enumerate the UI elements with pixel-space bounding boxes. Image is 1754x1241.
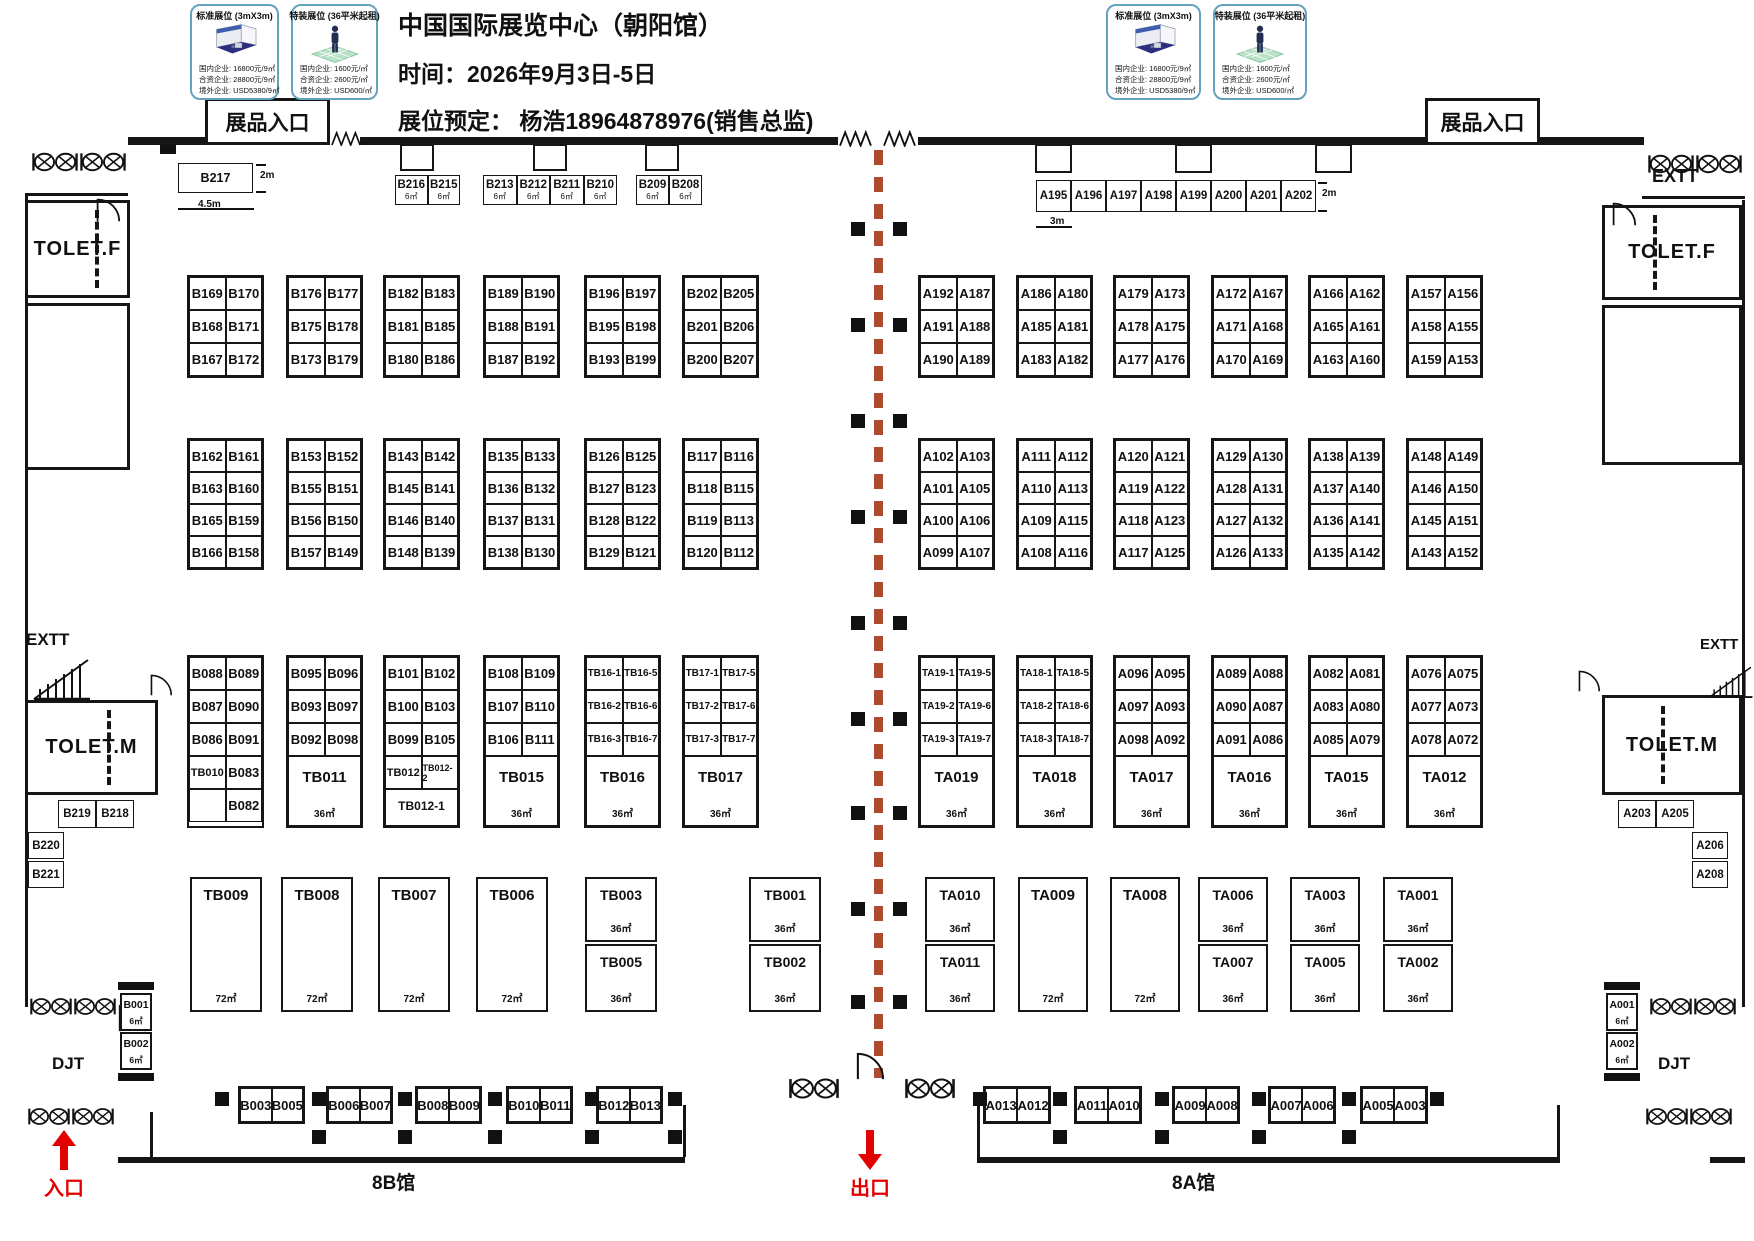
booth-B113[interactable]: B113: [721, 504, 758, 536]
booth-A151[interactable]: A151: [1445, 504, 1482, 536]
booth-TA19-3[interactable]: TA19-3: [920, 723, 957, 756]
booth-A122[interactable]: A122: [1152, 472, 1189, 504]
booth-B009[interactable]: B009: [449, 1088, 481, 1122]
booth-A158[interactable]: A158: [1408, 310, 1445, 343]
booth-B155[interactable]: B155: [288, 472, 325, 504]
booth-A177[interactable]: A177: [1115, 343, 1152, 376]
booth-A179[interactable]: A179: [1115, 277, 1152, 310]
booth-A196[interactable]: A196: [1071, 180, 1106, 212]
booth-A182[interactable]: A182: [1055, 343, 1092, 376]
booth-B196[interactable]: B196: [586, 277, 623, 310]
booth-A163[interactable]: A163: [1310, 343, 1347, 376]
booth-A079[interactable]: A079: [1347, 723, 1384, 756]
booth-B083[interactable]: B083: [226, 756, 263, 789]
booth-A152[interactable]: A152: [1445, 536, 1482, 568]
booth-B171[interactable]: B171: [226, 310, 263, 343]
booth-B096[interactable]: B096: [325, 657, 362, 690]
booth-A100[interactable]: A100: [920, 504, 957, 536]
booth-A201[interactable]: A201: [1246, 180, 1281, 212]
booth-B128[interactable]: B128: [586, 504, 623, 536]
booth-A161[interactable]: A161: [1347, 310, 1384, 343]
booth-TA015[interactable]: TA01536㎡: [1310, 756, 1383, 826]
booth-TA006[interactable]: TA00636㎡: [1198, 877, 1268, 942]
booth-TB16-5[interactable]: TB16-5: [623, 657, 660, 690]
booth-A157[interactable]: A157: [1408, 277, 1445, 310]
booth-B142[interactable]: B142: [422, 440, 459, 472]
booth-TB16-3[interactable]: TB16-3: [586, 723, 623, 756]
booth-A089[interactable]: A089: [1213, 657, 1250, 690]
booth-B220[interactable]: B220: [28, 832, 64, 859]
booth-B126[interactable]: B126: [586, 440, 623, 472]
booth-A118[interactable]: A118: [1115, 504, 1152, 536]
booth-A206[interactable]: A206: [1692, 832, 1728, 859]
booth-B107[interactable]: B107: [485, 690, 522, 723]
booth-TB010[interactable]: TB010: [189, 756, 226, 789]
booth-B089[interactable]: B089: [226, 657, 263, 690]
booth-A121[interactable]: A121: [1152, 440, 1189, 472]
booth-B119[interactable]: B119: [684, 504, 721, 536]
booth-B170[interactable]: B170: [226, 277, 263, 310]
booth-TB17-3[interactable]: TB17-3: [684, 723, 721, 756]
booth-TB009[interactable]: TB00972㎡: [190, 877, 262, 1012]
booth-B180[interactable]: B180: [385, 343, 422, 376]
booth-A180[interactable]: A180: [1055, 277, 1092, 310]
booth-A172[interactable]: A172: [1213, 277, 1250, 310]
booth-A090[interactable]: A090: [1213, 690, 1250, 723]
booth-TB011[interactable]: TB01136㎡: [288, 756, 361, 826]
booth-A139[interactable]: A139: [1347, 440, 1384, 472]
booth-B133[interactable]: B133: [522, 440, 559, 472]
booth-A155[interactable]: A155: [1445, 310, 1482, 343]
booth-B187[interactable]: B187: [485, 343, 522, 376]
booth-B217[interactable]: B217: [178, 163, 253, 193]
booth-B158[interactable]: B158: [226, 536, 263, 568]
booth-A168[interactable]: A168: [1250, 310, 1287, 343]
booth-A170[interactable]: A170: [1213, 343, 1250, 376]
booth-A149[interactable]: A149: [1445, 440, 1482, 472]
booth-A186[interactable]: A186: [1018, 277, 1055, 310]
booth-B205[interactable]: B205: [721, 277, 758, 310]
booth-A195[interactable]: A195: [1036, 180, 1071, 212]
booth-A143[interactable]: A143: [1408, 536, 1445, 568]
booth-B152[interactable]: B152: [325, 440, 362, 472]
booth-A010[interactable]: A010: [1108, 1088, 1140, 1122]
booth-TB16-6[interactable]: TB16-6: [623, 690, 660, 723]
booth-TB012-1[interactable]: TB012-1: [385, 789, 458, 826]
booth-B103[interactable]: B103: [422, 690, 459, 723]
booth-B160[interactable]: B160: [226, 472, 263, 504]
booth-B138[interactable]: B138: [485, 536, 522, 568]
booth-B111[interactable]: B111: [522, 723, 559, 756]
booth-A013[interactable]: A013: [985, 1088, 1017, 1122]
booth-B212[interactable]: B2126㎡: [517, 175, 551, 205]
booth-B213[interactable]: B2136㎡: [483, 175, 517, 205]
booth-B086[interactable]: B086: [189, 723, 226, 756]
booth-A078[interactable]: A078: [1408, 723, 1445, 756]
booth-A150[interactable]: A150: [1445, 472, 1482, 504]
booth-TA001[interactable]: TA00136㎡: [1383, 877, 1453, 942]
booth-A009[interactable]: A009: [1174, 1088, 1206, 1122]
booth-A092[interactable]: A092: [1152, 723, 1189, 756]
booth-A109[interactable]: A109: [1018, 504, 1055, 536]
booth-A111[interactable]: A111: [1018, 440, 1055, 472]
booth-B129[interactable]: B129: [586, 536, 623, 568]
booth-B175[interactable]: B175: [288, 310, 325, 343]
booth-A097[interactable]: A097: [1115, 690, 1152, 723]
booth-B132[interactable]: B132: [522, 472, 559, 504]
booth-A101[interactable]: A101: [920, 472, 957, 504]
booth-B201[interactable]: B201: [684, 310, 721, 343]
booth-A080[interactable]: A080: [1347, 690, 1384, 723]
booth-B156[interactable]: B156: [288, 504, 325, 536]
booth-A167[interactable]: A167: [1250, 277, 1287, 310]
booth-A007[interactable]: A007: [1270, 1088, 1302, 1122]
booth-B002[interactable]: B0026㎡: [120, 1032, 152, 1070]
booth-TA016[interactable]: TA01636㎡: [1213, 756, 1286, 826]
booth-TA19-6[interactable]: TA19-6: [957, 690, 994, 723]
booth-TB16-7[interactable]: TB16-7: [623, 723, 660, 756]
booth-B100[interactable]: B100: [385, 690, 422, 723]
booth-B082[interactable]: B082: [226, 789, 263, 822]
booth-TA005[interactable]: TA00536㎡: [1290, 944, 1360, 1012]
booth-A087[interactable]: A087: [1250, 690, 1287, 723]
booth-A081[interactable]: A081: [1347, 657, 1384, 690]
booth-TA002[interactable]: TA00236㎡: [1383, 944, 1453, 1012]
booth-B097[interactable]: B097: [325, 690, 362, 723]
booth-TB16-1[interactable]: TB16-1: [586, 657, 623, 690]
booth-B127[interactable]: B127: [586, 472, 623, 504]
booth-TB008[interactable]: TB00872㎡: [281, 877, 353, 1012]
booth-B118[interactable]: B118: [684, 472, 721, 504]
booth-B176[interactable]: B176: [288, 277, 325, 310]
booth-B116[interactable]: B116: [721, 440, 758, 472]
booth-B003[interactable]: B003: [240, 1088, 272, 1122]
booth-A160[interactable]: A160: [1347, 343, 1384, 376]
booth-B090[interactable]: B090: [226, 690, 263, 723]
booth-A185[interactable]: A185: [1018, 310, 1055, 343]
booth-B143[interactable]: B143: [385, 440, 422, 472]
booth-A012[interactable]: A012: [1017, 1088, 1049, 1122]
booth-B209[interactable]: B2096㎡: [636, 175, 669, 205]
booth-TA007[interactable]: TA00736㎡: [1198, 944, 1268, 1012]
booth-B182[interactable]: B182: [385, 277, 422, 310]
booth-A088[interactable]: A088: [1250, 657, 1287, 690]
exhibit-entrance-left[interactable]: 展品入口: [205, 98, 330, 145]
booth-A187[interactable]: A187: [957, 277, 994, 310]
booth-TA19-5[interactable]: TA19-5: [957, 657, 994, 690]
booth-B112[interactable]: B112: [721, 536, 758, 568]
booth-TB003[interactable]: TB00336㎡: [585, 877, 657, 942]
booth-A190[interactable]: A190: [920, 343, 957, 376]
booth-B191[interactable]: B191: [522, 310, 559, 343]
booth-B131[interactable]: B131: [522, 504, 559, 536]
booth-A169[interactable]: A169: [1250, 343, 1287, 376]
booth-B006[interactable]: B006: [328, 1088, 360, 1122]
booth-A175[interactable]: A175: [1152, 310, 1189, 343]
booth-A116[interactable]: A116: [1055, 536, 1092, 568]
booth-A075[interactable]: A075: [1445, 657, 1482, 690]
booth-TB012[interactable]: TB012: [385, 756, 422, 789]
booth-A115[interactable]: A115: [1055, 504, 1092, 536]
booth-A188[interactable]: A188: [957, 310, 994, 343]
booth-TA18-7[interactable]: TA18-7: [1055, 723, 1092, 756]
booth-A098[interactable]: A098: [1115, 723, 1152, 756]
booth-A086[interactable]: A086: [1250, 723, 1287, 756]
booth-B091[interactable]: B091: [226, 723, 263, 756]
booth-A125[interactable]: A125: [1152, 536, 1189, 568]
booth-A099[interactable]: A099: [920, 536, 957, 568]
booth-A138[interactable]: A138: [1310, 440, 1347, 472]
booth-B140[interactable]: B140: [422, 504, 459, 536]
booth-B163[interactable]: B163: [189, 472, 226, 504]
booth-TA009[interactable]: TA00972㎡: [1018, 877, 1088, 1012]
booth-B197[interactable]: B197: [623, 277, 660, 310]
booth-B157[interactable]: B157: [288, 536, 325, 568]
booth-TB17-6[interactable]: TB17-6: [721, 690, 758, 723]
booth-A110[interactable]: A110: [1018, 472, 1055, 504]
booth-B093[interactable]: B093: [288, 690, 325, 723]
booth-B012[interactable]: B012: [598, 1088, 630, 1122]
booth-A135[interactable]: A135: [1310, 536, 1347, 568]
booth-B190[interactable]: B190: [522, 277, 559, 310]
booth-A011[interactable]: A011: [1076, 1088, 1108, 1122]
booth-A140[interactable]: A140: [1347, 472, 1384, 504]
booth-B099[interactable]: B099: [385, 723, 422, 756]
booth-A127[interactable]: A127: [1213, 504, 1250, 536]
booth-TA011[interactable]: TA01136㎡: [925, 944, 995, 1012]
booth-A105[interactable]: A105: [957, 472, 994, 504]
booth-B146[interactable]: B146: [385, 504, 422, 536]
booth-A148[interactable]: A148: [1408, 440, 1445, 472]
booth-B105[interactable]: B105: [422, 723, 459, 756]
booth-B178[interactable]: B178: [325, 310, 362, 343]
booth-B115[interactable]: B115: [721, 472, 758, 504]
booth-A108[interactable]: A108: [1018, 536, 1055, 568]
booth-B159[interactable]: B159: [226, 504, 263, 536]
booth-A200[interactable]: A200: [1211, 180, 1246, 212]
booth-B123[interactable]: B123: [623, 472, 660, 504]
booth-TB17-7[interactable]: TB17-7: [721, 723, 758, 756]
booth-B101[interactable]: B101: [385, 657, 422, 690]
booth-A093[interactable]: A093: [1152, 690, 1189, 723]
booth-A137[interactable]: A137: [1310, 472, 1347, 504]
booth-A002[interactable]: A0026㎡: [1606, 1032, 1638, 1070]
booth-B141[interactable]: B141: [422, 472, 459, 504]
booth-A181[interactable]: A181: [1055, 310, 1092, 343]
booth-A073[interactable]: A073: [1445, 690, 1482, 723]
booth-TA012[interactable]: TA01236㎡: [1408, 756, 1481, 826]
booth-TA18-6[interactable]: TA18-6: [1055, 690, 1092, 723]
booth-B192[interactable]: B192: [522, 343, 559, 376]
booth-B005[interactable]: B005: [272, 1088, 304, 1122]
booth-A192[interactable]: A192: [920, 277, 957, 310]
booth-B169[interactable]: B169: [189, 277, 226, 310]
booth-A008[interactable]: A008: [1206, 1088, 1238, 1122]
booth-TB017[interactable]: TB01736㎡: [684, 756, 757, 826]
booth-A205[interactable]: A205: [1656, 800, 1694, 828]
booth-B211[interactable]: B2116㎡: [550, 175, 584, 205]
booth-B007[interactable]: B007: [360, 1088, 392, 1122]
booth-B106[interactable]: B106: [485, 723, 522, 756]
booth-B189[interactable]: B189: [485, 277, 522, 310]
booth-A096[interactable]: A096: [1115, 657, 1152, 690]
booth-A183[interactable]: A183: [1018, 343, 1055, 376]
booth-TB16-2[interactable]: TB16-2: [586, 690, 623, 723]
booth-B200[interactable]: B200: [684, 343, 721, 376]
booth-B219[interactable]: B219: [58, 800, 96, 828]
booth-B206[interactable]: B206: [721, 310, 758, 343]
booth-TB006[interactable]: TB00672㎡: [476, 877, 548, 1012]
booth-TA19-1[interactable]: TA19-1: [920, 657, 957, 690]
booth-B151[interactable]: B151: [325, 472, 362, 504]
booth-A128[interactable]: A128: [1213, 472, 1250, 504]
booth-B108[interactable]: B108: [485, 657, 522, 690]
booth-A202[interactable]: A202: [1281, 180, 1316, 212]
booth-B120[interactable]: B120: [684, 536, 721, 568]
booth-B221[interactable]: B221: [28, 861, 64, 888]
booth-B122[interactable]: B122: [623, 504, 660, 536]
booth-A130[interactable]: A130: [1250, 440, 1287, 472]
booth-A191[interactable]: A191: [920, 310, 957, 343]
booth-A208[interactable]: A208: [1692, 861, 1728, 888]
booth-B145[interactable]: B145: [385, 472, 422, 504]
booth-B001[interactable]: B0016㎡: [120, 993, 152, 1031]
booth-B207[interactable]: B207: [721, 343, 758, 376]
booth-A076[interactable]: A076: [1408, 657, 1445, 690]
booth-B098[interactable]: B098: [325, 723, 362, 756]
booth-B148[interactable]: B148: [385, 536, 422, 568]
booth-TA003[interactable]: TA00336㎡: [1290, 877, 1360, 942]
booth-TB012-2[interactable]: TB012-2: [422, 756, 459, 789]
booth-B011[interactable]: B011: [540, 1088, 572, 1122]
booth-TA19-2[interactable]: TA19-2: [920, 690, 957, 723]
booth-A197[interactable]: A197: [1106, 180, 1141, 212]
booth-B109[interactable]: B109: [522, 657, 559, 690]
booth-B137[interactable]: B137: [485, 504, 522, 536]
booth-B095[interactable]: B095: [288, 657, 325, 690]
booth-A176[interactable]: A176: [1152, 343, 1189, 376]
booth-A166[interactable]: A166: [1310, 277, 1347, 310]
booth-A123[interactable]: A123: [1152, 504, 1189, 536]
booth-TA017[interactable]: TA01736㎡: [1115, 756, 1188, 826]
booth-A132[interactable]: A132: [1250, 504, 1287, 536]
booth-TA19-7[interactable]: TA19-7: [957, 723, 994, 756]
booth-A131[interactable]: A131: [1250, 472, 1287, 504]
booth-B125[interactable]: B125: [623, 440, 660, 472]
booth-A145[interactable]: A145: [1408, 504, 1445, 536]
booth-A117[interactable]: A117: [1115, 536, 1152, 568]
booth-B010[interactable]: B010: [508, 1088, 540, 1122]
booth-A171[interactable]: A171: [1213, 310, 1250, 343]
booth-A141[interactable]: A141: [1347, 504, 1384, 536]
booth-B139[interactable]: B139: [422, 536, 459, 568]
booth-TA18-2[interactable]: TA18-2: [1018, 690, 1055, 723]
booth-B185[interactable]: B185: [422, 310, 459, 343]
booth-A153[interactable]: A153: [1445, 343, 1482, 376]
booth-B215[interactable]: B2156㎡: [428, 175, 461, 205]
booth-A003[interactable]: A003: [1394, 1088, 1426, 1122]
booth-A126[interactable]: A126: [1213, 536, 1250, 568]
booth-B087[interactable]: B087: [189, 690, 226, 723]
booth-B167[interactable]: B167: [189, 343, 226, 376]
booth-A129[interactable]: A129: [1213, 440, 1250, 472]
booth-A103[interactable]: A103: [957, 440, 994, 472]
booth-TB17-5[interactable]: TB17-5: [721, 657, 758, 690]
booth-B199[interactable]: B199: [623, 343, 660, 376]
booth-B161[interactable]: B161: [226, 440, 263, 472]
booth-A091[interactable]: A091: [1213, 723, 1250, 756]
booth-A005[interactable]: A005: [1362, 1088, 1394, 1122]
booth-TB015[interactable]: TB01536㎡: [485, 756, 558, 826]
booth-B117[interactable]: B117: [684, 440, 721, 472]
booth-B198[interactable]: B198: [623, 310, 660, 343]
booth-B136[interactable]: B136: [485, 472, 522, 504]
booth-B186[interactable]: B186: [422, 343, 459, 376]
booth-B162[interactable]: B162: [189, 440, 226, 472]
booth-B092[interactable]: B092: [288, 723, 325, 756]
booth-B102[interactable]: B102: [422, 657, 459, 690]
booth-A133[interactable]: A133: [1250, 536, 1287, 568]
booth-A159[interactable]: A159: [1408, 343, 1445, 376]
booth-A119[interactable]: A119: [1115, 472, 1152, 504]
booth-A173[interactable]: A173: [1152, 277, 1189, 310]
booth-A203[interactable]: A203: [1618, 800, 1656, 828]
booth-TB005[interactable]: TB00536㎡: [585, 944, 657, 1012]
booth-A072[interactable]: A072: [1445, 723, 1482, 756]
booth-TA018[interactable]: TA01836㎡: [1018, 756, 1091, 826]
booth-A095[interactable]: A095: [1152, 657, 1189, 690]
booth-TA18-5[interactable]: TA18-5: [1055, 657, 1092, 690]
booth-A165[interactable]: A165: [1310, 310, 1347, 343]
exhibit-entrance-right[interactable]: 展品入口: [1425, 98, 1540, 145]
booth-B149[interactable]: B149: [325, 536, 362, 568]
booth-B110[interactable]: B110: [522, 690, 559, 723]
booth-B150[interactable]: B150: [325, 504, 362, 536]
booth-A198[interactable]: A198: [1141, 180, 1176, 212]
booth-TB17-2[interactable]: TB17-2: [684, 690, 721, 723]
booth-A199[interactable]: A199: [1176, 180, 1211, 212]
booth-A082[interactable]: A082: [1310, 657, 1347, 690]
booth-B193[interactable]: B193: [586, 343, 623, 376]
booth-B165[interactable]: B165: [189, 504, 226, 536]
booth-TA019[interactable]: TA01936㎡: [920, 756, 993, 826]
booth-B173[interactable]: B173: [288, 343, 325, 376]
booth-B218[interactable]: B218: [96, 800, 134, 828]
booth-B177[interactable]: B177: [325, 277, 362, 310]
booth-A102[interactable]: A102: [920, 440, 957, 472]
booth-A006[interactable]: A006: [1302, 1088, 1334, 1122]
booth-B168[interactable]: B168: [189, 310, 226, 343]
booth-A112[interactable]: A112: [1055, 440, 1092, 472]
booth-B135[interactable]: B135: [485, 440, 522, 472]
booth-A001[interactable]: A0016㎡: [1606, 993, 1638, 1031]
booth-B216[interactable]: B2166㎡: [395, 175, 428, 205]
booth-TA18-1[interactable]: TA18-1: [1018, 657, 1055, 690]
booth-TA008[interactable]: TA00872㎡: [1110, 877, 1180, 1012]
booth-TB016[interactable]: TB01636㎡: [586, 756, 659, 826]
booth-B008[interactable]: B008: [417, 1088, 449, 1122]
booth-A136[interactable]: A136: [1310, 504, 1347, 536]
booth-TB001[interactable]: TB00136㎡: [749, 877, 821, 942]
booth-TB007[interactable]: TB00772㎡: [378, 877, 450, 1012]
booth-B088[interactable]: B088: [189, 657, 226, 690]
booth-B166[interactable]: B166: [189, 536, 226, 568]
booth-B179[interactable]: B179: [325, 343, 362, 376]
booth-A142[interactable]: A142: [1347, 536, 1384, 568]
booth-A085[interactable]: A085: [1310, 723, 1347, 756]
booth-TA18-3[interactable]: TA18-3: [1018, 723, 1055, 756]
booth-B181[interactable]: B181: [385, 310, 422, 343]
